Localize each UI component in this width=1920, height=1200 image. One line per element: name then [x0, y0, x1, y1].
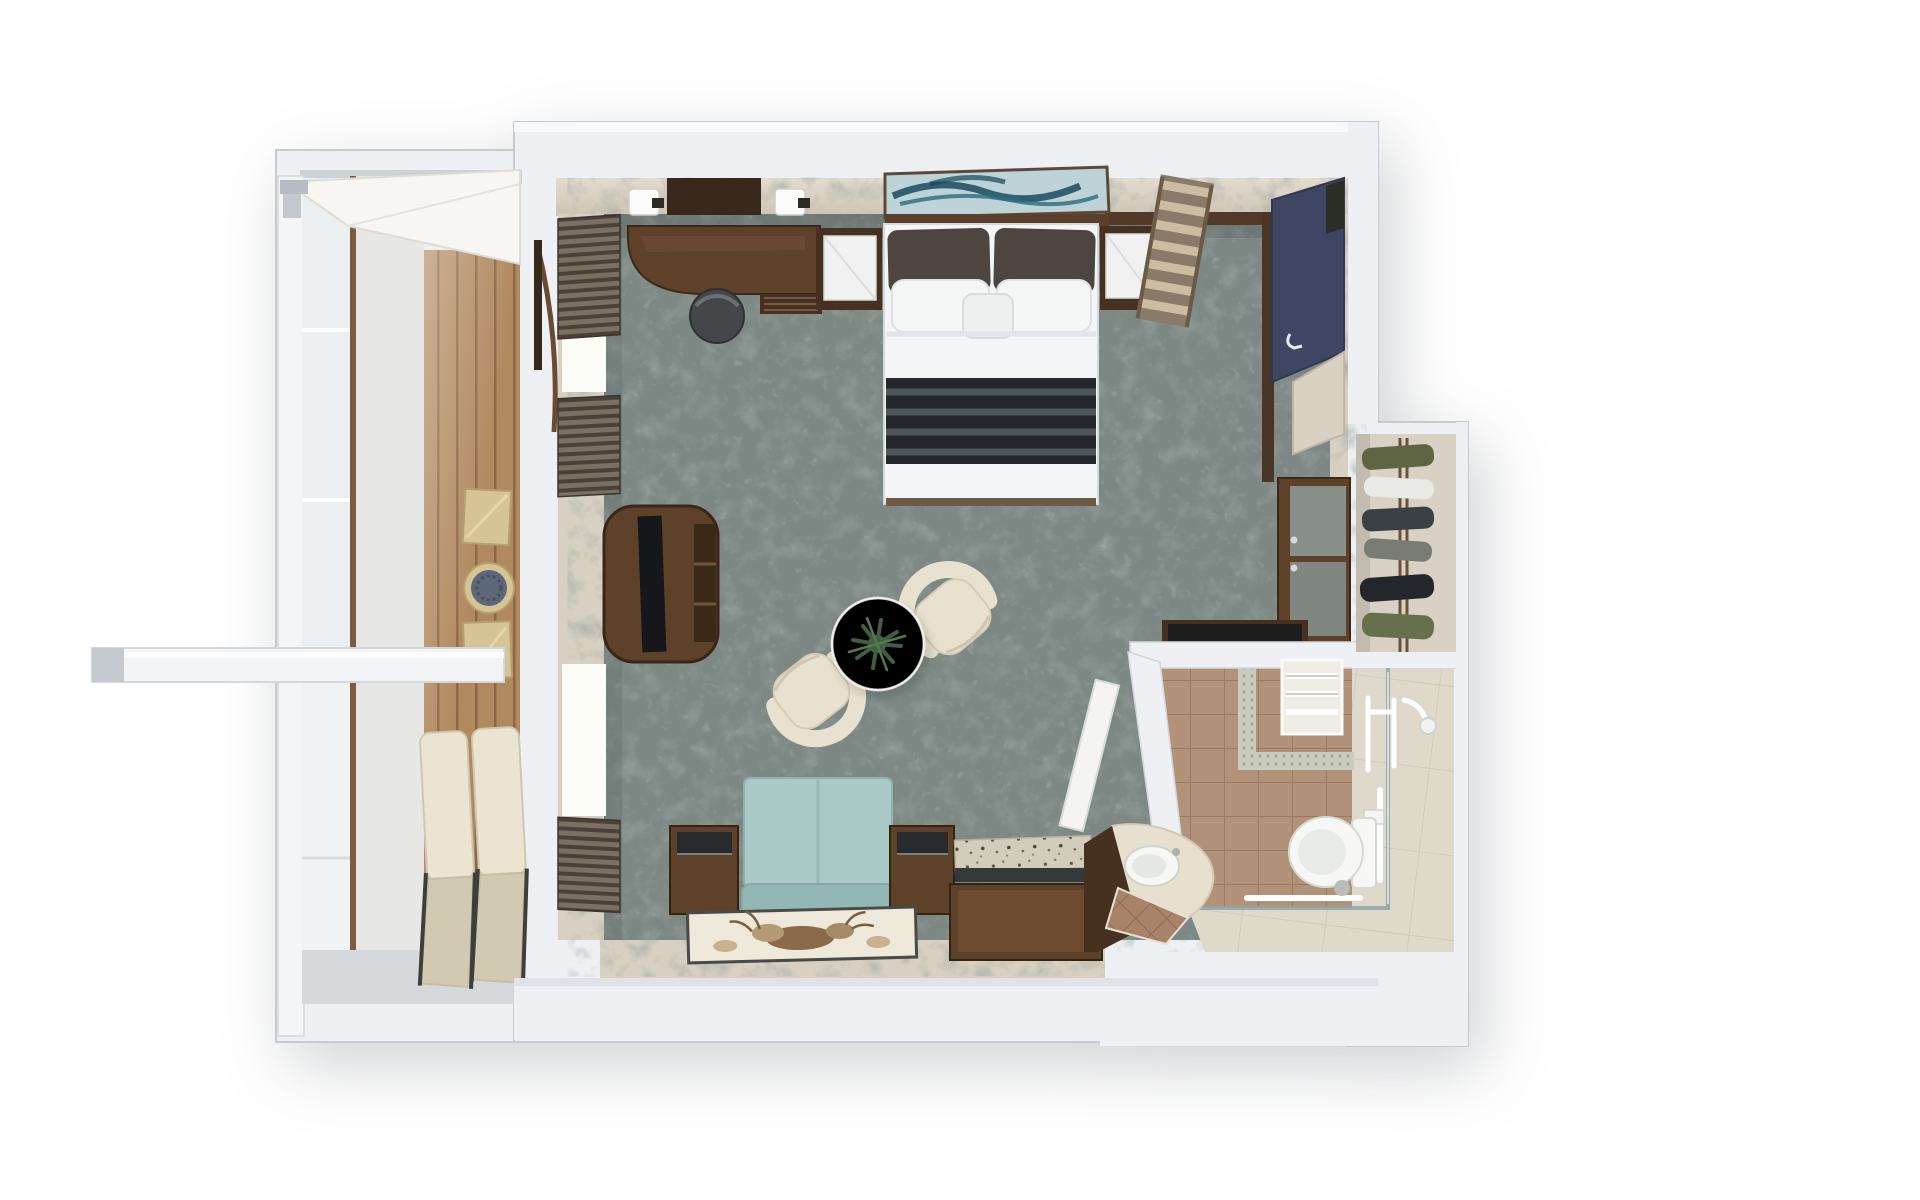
seascape-artwork: [885, 167, 1109, 218]
blind-panel-1: [558, 215, 620, 339]
wardrobe-safe: [1326, 180, 1344, 234]
bed-runner: [886, 378, 1096, 464]
closet: [1352, 434, 1458, 668]
tv-console: [604, 506, 718, 662]
cube-side-table-right: [890, 826, 954, 914]
wall-top-edge-highlight: [514, 122, 1378, 132]
bottom-right-wall-band: [1105, 952, 1468, 1044]
bottom-wall-shade: [514, 978, 1378, 986]
floorplan-render: [0, 0, 1920, 1200]
writing-desk-sheen: [640, 236, 805, 252]
gold-cube-table-1: [463, 489, 512, 545]
double-bed: [884, 224, 1098, 506]
blind-panel-3: [558, 817, 620, 912]
faucet: [1172, 848, 1180, 856]
window-upper: [562, 334, 606, 392]
privacy-divider: [92, 648, 504, 682]
wall-mirror-panel: [667, 178, 761, 215]
shower-head: [1420, 718, 1436, 734]
round-rattan-table: [464, 563, 514, 613]
bed-pillow-accent: [963, 294, 1013, 338]
glass-balustrade-glass: [302, 178, 350, 656]
granite-vanity-desk: [950, 836, 1102, 960]
wall-lamp-right: [775, 189, 810, 215]
loveseat-sofa: [742, 778, 894, 929]
deer-artwork-panel: [687, 907, 916, 963]
balcony: [278, 170, 533, 1036]
right-wall-band: [1348, 122, 1378, 424]
wall-lamp-left: [629, 189, 664, 215]
mosaic-border-h: [1238, 752, 1354, 770]
towel-rack: [1282, 660, 1342, 734]
bed-foot-frame: [886, 498, 1096, 506]
cube-side-table-left: [670, 826, 738, 914]
door-frame-dark: [534, 240, 542, 370]
closet-divider-wall: [1352, 652, 1458, 668]
extension-right-wall-band: [1456, 422, 1468, 1046]
cabin-interior: [514, 122, 1468, 1046]
balustrade-wood-rail: [350, 176, 356, 1002]
window-lower: [562, 664, 606, 816]
nightstand-left: [816, 228, 882, 310]
balcony-walkway: [356, 176, 424, 1002]
blind-panel-2: [558, 396, 620, 497]
dresser: [1278, 478, 1350, 644]
glass-balustrade-frame: [278, 176, 304, 1036]
suite-floorplan: [276, 122, 1468, 1046]
